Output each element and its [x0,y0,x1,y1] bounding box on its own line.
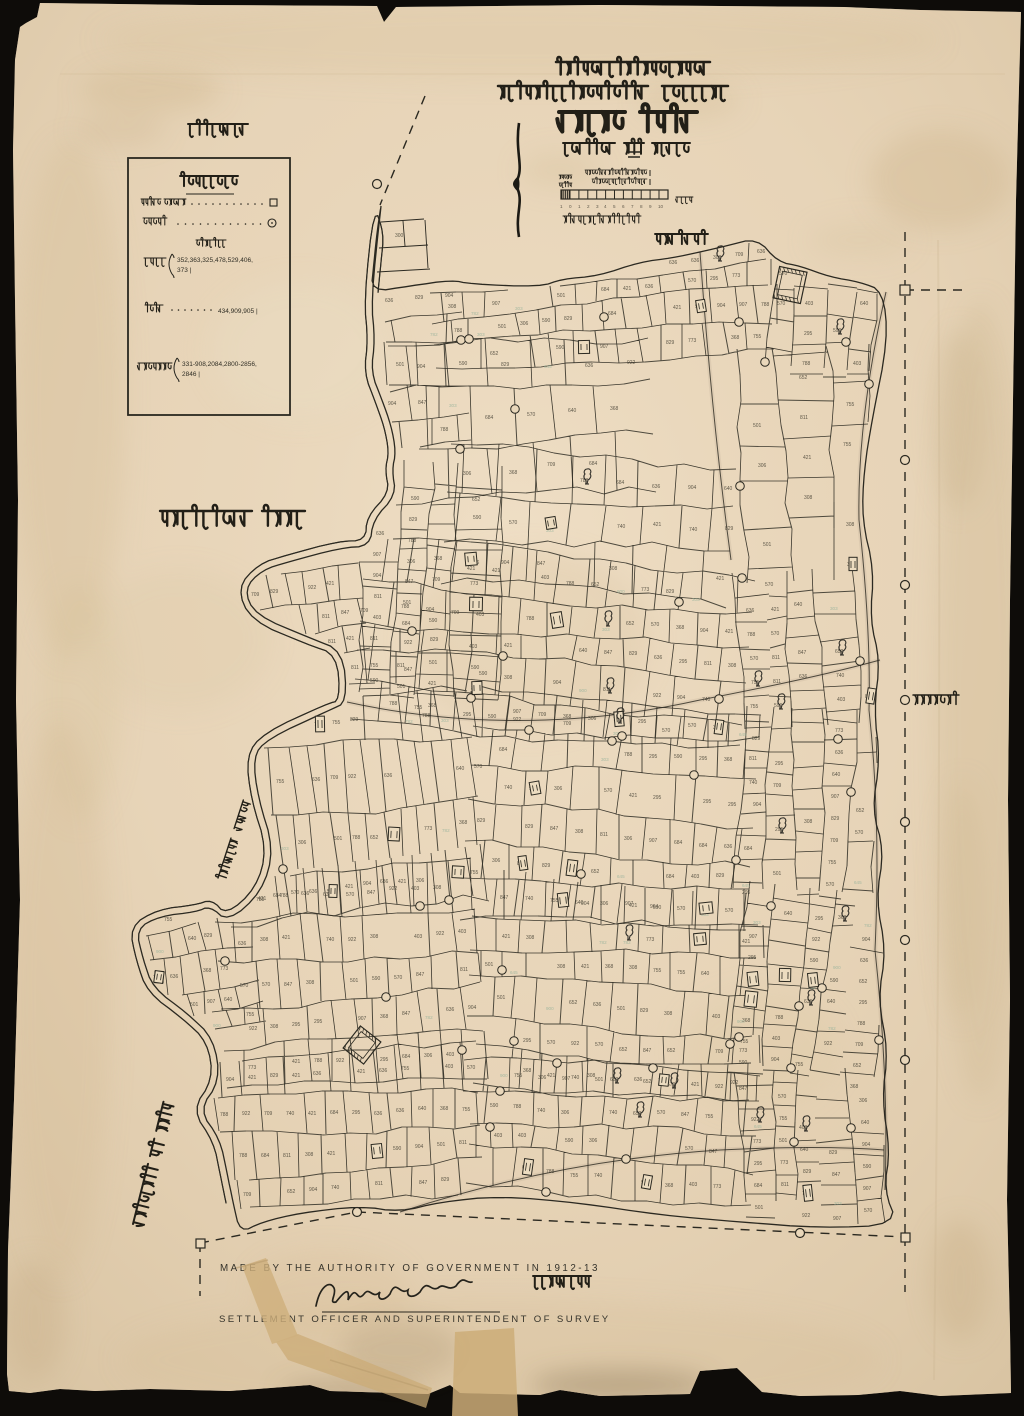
svg-text:501: 501 [595,1077,604,1083]
svg-text:829: 829 [477,818,486,824]
svg-text:308: 308 [804,819,813,825]
svg-text:904: 904 [677,695,686,701]
svg-text:907: 907 [863,1186,872,1192]
svg-text:645: 645 [544,364,552,369]
svg-text:636: 636 [835,750,844,756]
svg-text:570: 570 [604,788,613,794]
svg-text:900: 900 [500,1073,508,1078]
svg-text:788: 788 [239,1153,248,1159]
svg-text:570: 570 [771,631,780,637]
svg-text:421: 421 [502,934,511,940]
svg-text:829: 829 [752,736,761,742]
svg-text:331-908,2084,2800-2856,: 331-908,2084,2800-2856, [182,361,257,368]
svg-text:904: 904 [862,937,871,943]
svg-text:709: 709 [547,462,556,468]
svg-text:755: 755 [401,1066,410,1072]
svg-text:847: 847 [739,1086,748,1092]
svg-text:636: 636 [446,1007,455,1013]
svg-text:740: 740 [689,527,698,533]
svg-text:590: 590 [490,1103,499,1109]
svg-text:570: 570 [240,983,249,989]
svg-text:652: 652 [591,869,600,875]
svg-text:847: 847 [537,561,546,567]
svg-text:788: 788 [802,361,811,367]
svg-text:788: 788 [761,302,770,308]
svg-text:922: 922 [824,1041,833,1047]
svg-text:847: 847 [681,1112,690,1118]
svg-text:755: 755 [470,870,479,876]
svg-text:308: 308 [448,304,457,310]
svg-text:904: 904 [309,1187,318,1193]
svg-text:640: 640 [827,999,836,1005]
svg-text:501: 501 [497,995,506,1001]
svg-text:421: 421 [725,629,734,635]
svg-text:811: 811 [772,655,780,661]
svg-text:755: 755 [828,860,837,866]
svg-text:904: 904 [468,1005,477,1011]
svg-text:709: 709 [451,610,460,616]
svg-text:773: 773 [835,728,844,734]
svg-text:740: 740 [326,937,335,943]
svg-text:421: 421 [258,896,267,902]
svg-text:755: 755 [246,1012,255,1018]
svg-text:570: 570 [765,582,774,588]
svg-text:421: 421 [629,903,638,909]
svg-text:303: 303 [602,627,610,632]
svg-text:652: 652 [853,1063,862,1069]
svg-text:434,909,905 |: 434,909,905 | [218,308,258,315]
svg-text:900: 900 [156,949,164,954]
svg-text:308: 308 [306,980,315,986]
svg-text:300: 300 [395,233,404,239]
svg-text:922: 922 [653,693,662,699]
svg-text:368: 368 [676,625,685,631]
svg-text:303: 303 [515,306,523,311]
svg-text:904: 904 [426,607,435,613]
svg-text:306: 306 [520,321,529,327]
svg-text:907: 907 [373,552,382,558]
svg-text:640: 640 [860,301,869,307]
svg-text:829: 829 [716,873,725,879]
svg-text:295: 295 [679,659,688,665]
svg-text:421: 421 [771,607,780,613]
svg-text:907: 907 [562,1076,571,1082]
svg-text:295: 295 [754,1161,763,1167]
svg-text:922: 922 [336,1058,345,1064]
svg-text:907: 907 [513,709,522,715]
svg-text:501: 501 [763,542,772,548]
svg-text:829: 829 [542,863,551,869]
svg-text:640: 640 [224,997,233,1003]
svg-text:922: 922 [715,1084,724,1090]
svg-text:904: 904 [700,628,709,634]
svg-text:788: 788 [747,632,756,638]
svg-text:904: 904 [415,1144,424,1150]
svg-text:421: 421 [547,1073,556,1079]
svg-text:829: 829 [831,816,840,822]
svg-text:421: 421 [282,935,291,941]
svg-text:570: 570 [725,908,734,914]
svg-text:368: 368 [440,1106,449,1112]
svg-text:652: 652 [370,835,379,841]
svg-text:590: 590 [429,618,438,624]
svg-text:684: 684 [485,415,494,421]
svg-text:295: 295 [380,1057,389,1063]
svg-text:640: 640 [456,766,465,772]
svg-text:501: 501 [334,836,343,842]
svg-text:570: 570 [826,882,835,888]
svg-text:829: 829 [350,717,359,723]
svg-text:590: 590 [739,1060,748,1066]
svg-text:922: 922 [436,931,445,937]
svg-text:295: 295 [463,712,472,718]
svg-text:308: 308 [270,1024,279,1030]
svg-text:295: 295 [703,799,712,805]
svg-text:847: 847 [643,1048,652,1054]
svg-text:306: 306 [492,858,501,864]
svg-text:636: 636 [654,655,663,661]
svg-text:4: 4 [604,204,607,209]
svg-text:308: 308 [629,965,638,971]
svg-text:2846 |: 2846 | [182,371,200,378]
svg-text:740: 740 [331,1185,340,1191]
svg-text:403: 403 [446,1052,455,1058]
svg-text:308: 308 [728,663,737,669]
svg-text:8: 8 [640,204,643,209]
svg-text:740: 740 [702,697,711,703]
svg-text:811: 811 [283,1153,291,1159]
svg-text:570: 570 [688,723,697,729]
svg-text:501: 501 [617,1006,626,1012]
svg-text:684: 684 [699,843,708,849]
svg-text:421: 421 [716,576,725,582]
svg-text:709: 709 [432,577,441,583]
svg-text:636: 636 [585,363,594,369]
svg-text:829: 829 [204,933,213,939]
svg-text:773: 773 [753,1139,762,1145]
svg-text:295: 295 [859,1000,868,1006]
svg-text:501: 501 [397,684,406,690]
svg-text:308: 308 [609,566,618,572]
svg-text:368: 368 [509,470,518,476]
svg-text:788: 788 [454,328,463,334]
svg-text:421: 421 [357,1069,366,1075]
svg-text:403: 403 [373,615,382,621]
svg-text:788: 788 [352,835,361,841]
svg-text:295: 295 [523,1038,532,1044]
svg-text:788: 788 [422,713,431,719]
svg-text:6: 6 [622,204,625,209]
svg-text:295: 295 [699,756,708,762]
svg-text:590: 590 [473,515,482,521]
svg-text:636: 636 [380,879,389,885]
svg-text:829: 829 [803,1169,812,1175]
svg-text:782: 782 [471,311,479,316]
svg-text:904: 904 [753,802,762,808]
svg-text:421: 421 [292,1059,301,1065]
svg-text:403: 403 [494,1133,503,1139]
svg-text:570: 570 [685,1146,694,1152]
svg-text:904: 904 [688,485,697,491]
svg-text:306: 306 [424,1053,433,1059]
svg-text:570: 570 [657,1110,666,1116]
svg-text:652: 652 [856,808,865,814]
svg-text:306: 306 [624,836,633,842]
svg-text:295: 295 [815,916,824,922]
svg-text:652: 652 [490,351,499,357]
svg-text:640: 640 [861,1120,870,1126]
svg-text:755: 755 [370,663,379,669]
svg-text:421: 421 [398,879,407,885]
svg-text:847: 847 [416,972,425,978]
svg-text:782: 782 [623,940,631,945]
svg-text:788: 788 [513,1104,522,1110]
svg-text:640: 640 [800,1147,809,1153]
svg-text:421: 421 [504,643,513,649]
svg-text:590: 590 [372,976,381,982]
svg-text:303: 303 [834,1201,842,1206]
svg-text:501: 501 [396,362,405,368]
svg-text:570: 570 [595,1042,604,1048]
svg-text:3: 3 [596,204,599,209]
svg-text:904: 904 [363,881,372,887]
svg-text:684: 684 [744,846,753,852]
svg-text:684: 684 [608,311,617,317]
svg-text:0: 0 [569,204,572,209]
svg-text:421: 421 [308,1111,317,1117]
svg-text:570: 570 [750,656,759,662]
svg-text:847: 847 [341,610,350,616]
svg-text:907: 907 [739,302,748,308]
svg-text:782: 782 [430,332,438,337]
svg-text:421: 421 [428,681,437,687]
svg-text:636: 636 [170,974,179,980]
svg-text:368: 368 [724,757,733,763]
svg-text:368: 368 [434,556,443,562]
svg-text:755: 755 [705,1114,714,1120]
svg-text:904: 904 [445,293,454,299]
svg-text:295: 295 [314,1019,323,1025]
svg-text:636: 636 [757,249,766,255]
svg-text:306: 306 [407,559,416,565]
svg-text:829: 829 [270,589,279,595]
svg-text:306: 306 [589,1138,598,1144]
svg-text:782: 782 [599,940,607,945]
svg-text:403: 403 [541,575,550,581]
svg-text:829: 829 [525,824,534,830]
svg-text:306: 306 [416,878,425,884]
svg-text:403: 403 [411,886,420,892]
svg-text:570: 570 [662,728,671,734]
svg-text:421: 421 [248,1075,257,1081]
svg-text:684: 684 [616,480,625,486]
svg-text:570: 570 [474,764,483,770]
svg-text:782: 782 [864,923,872,928]
svg-text:773: 773 [470,581,479,587]
svg-text:907: 907 [358,1016,367,1022]
svg-text:755: 755 [653,968,662,974]
svg-text:368: 368 [203,968,212,974]
svg-text:590: 590 [565,1138,574,1144]
svg-text:403: 403 [414,934,423,940]
svg-text:501: 501 [350,978,359,984]
svg-text:847: 847 [404,667,413,673]
svg-text:640: 640 [784,911,793,917]
svg-text:303: 303 [477,332,485,337]
svg-text:773: 773 [713,1184,722,1190]
svg-text:636: 636 [691,258,700,264]
svg-text:755: 755 [795,1062,804,1068]
svg-text:847: 847 [367,890,376,896]
svg-text:829: 829 [415,295,424,301]
svg-text:9: 9 [649,204,652,209]
svg-text:773: 773 [732,273,741,279]
svg-text:403: 403 [772,1036,781,1042]
svg-text:636: 636 [669,260,678,266]
svg-text:773: 773 [424,826,433,832]
svg-text:303: 303 [281,846,289,851]
svg-text:501: 501 [755,1205,764,1211]
svg-text:684: 684 [261,1153,270,1159]
svg-text:740: 740 [525,896,534,902]
svg-text:922: 922 [812,937,821,943]
svg-text:295: 295 [292,1022,301,1028]
svg-text:922: 922 [730,1080,739,1086]
svg-text:755: 755 [843,442,852,448]
svg-text:755: 755 [779,1116,788,1122]
svg-text:755: 755 [750,704,759,710]
svg-text:709: 709 [243,1192,252,1198]
svg-text:788: 788 [546,1169,555,1175]
svg-text:MADE BY THE AUTHORITY OF GOVER: MADE BY THE AUTHORITY OF GOVERNMENT IN 1… [220,1263,600,1274]
svg-text:403: 403 [853,361,862,367]
svg-text:773: 773 [739,1048,748,1054]
svg-text:640: 640 [701,971,710,977]
svg-text:900: 900 [579,688,587,693]
svg-text:636: 636 [652,484,661,490]
svg-text:403: 403 [476,612,485,618]
svg-text:904: 904 [226,1077,235,1083]
svg-text:570: 570 [777,301,786,307]
svg-text:636: 636 [860,958,869,964]
svg-text:308: 308 [575,829,584,835]
svg-text:570: 570 [547,1040,556,1046]
svg-text:645: 645 [754,1124,762,1129]
svg-text:403: 403 [691,874,700,880]
svg-text:773: 773 [220,966,229,972]
svg-text:295: 295 [742,890,751,896]
svg-text:303: 303 [753,920,761,925]
svg-text:811: 811 [800,415,808,421]
svg-text:709: 709 [563,721,572,727]
svg-text:922: 922 [802,1213,811,1219]
svg-text:403: 403 [712,1014,721,1020]
svg-text:403: 403 [518,1133,527,1139]
svg-text:306: 306 [561,1110,570,1116]
svg-text:636: 636 [238,941,247,947]
svg-text:636: 636 [301,891,310,897]
svg-text:590: 590 [674,754,683,760]
svg-text:570: 570 [651,622,660,628]
svg-text:590: 590 [479,671,488,677]
svg-text:421: 421 [345,884,354,890]
svg-text:308: 308 [370,934,379,940]
svg-text:740: 740 [594,1173,603,1179]
svg-text:421: 421 [623,286,632,292]
svg-text:1: 1 [560,204,563,209]
svg-text:10: 10 [658,204,664,209]
svg-text:308: 308 [664,1011,673,1017]
svg-text:636: 636 [385,298,394,304]
svg-text:788: 788 [220,1112,229,1118]
svg-text:684: 684 [589,461,598,467]
svg-text:501: 501 [753,423,762,429]
svg-text:295: 295 [775,761,784,767]
svg-text:308: 308 [504,675,513,681]
svg-text:501: 501 [498,324,507,330]
svg-text:847: 847 [500,895,509,901]
svg-text:811: 811 [460,967,468,973]
svg-text:847: 847 [418,400,427,406]
svg-text:755: 755 [164,917,173,923]
svg-text:811: 811 [704,661,712,667]
svg-text:2: 2 [587,204,590,209]
svg-text:755: 755 [462,1107,471,1113]
svg-text:847: 847 [419,1180,428,1186]
svg-text:922: 922 [348,937,357,943]
svg-text:590: 590 [863,1164,872,1170]
svg-text:684: 684 [666,874,675,880]
svg-text:829: 829 [270,1073,279,1079]
svg-text:900: 900 [213,1023,221,1028]
svg-text:368: 368 [731,335,740,341]
svg-text:709: 709 [538,712,547,718]
svg-text:811: 811 [600,832,608,838]
svg-text:922: 922 [249,1026,258,1032]
svg-text:782: 782 [442,828,450,833]
svg-text:636: 636 [746,608,755,614]
svg-text:295: 295 [352,1110,361,1116]
svg-text:788: 788 [314,1058,323,1064]
svg-text:922: 922 [627,360,636,366]
svg-text:636: 636 [313,1071,322,1077]
svg-text:740: 740 [571,1075,580,1081]
svg-text:645: 645 [854,880,862,885]
svg-text:590: 590 [653,905,662,911]
svg-text:900: 900 [737,1019,745,1024]
svg-text:847: 847 [405,579,414,585]
svg-text:755: 755 [753,334,762,340]
svg-text:308: 308 [557,964,566,970]
svg-text:907: 907 [600,344,609,350]
svg-text:590: 590 [459,361,468,367]
svg-text:740: 740 [537,1108,546,1114]
svg-text:368: 368 [380,1014,389,1020]
svg-text:755: 755 [514,1073,523,1079]
svg-text:5: 5 [613,204,616,209]
svg-text:421: 421 [326,581,335,587]
svg-text:368: 368 [428,703,437,709]
svg-text:652: 652 [626,621,635,627]
svg-text:306: 306 [758,463,767,469]
svg-text:570: 570 [346,892,355,898]
svg-text:636: 636 [634,1077,643,1083]
svg-text:421: 421 [691,1082,700,1088]
svg-text:755: 755 [332,720,341,726]
svg-text:368: 368 [665,1183,674,1189]
svg-text:501: 501 [190,1002,199,1008]
svg-text:922: 922 [404,640,413,646]
